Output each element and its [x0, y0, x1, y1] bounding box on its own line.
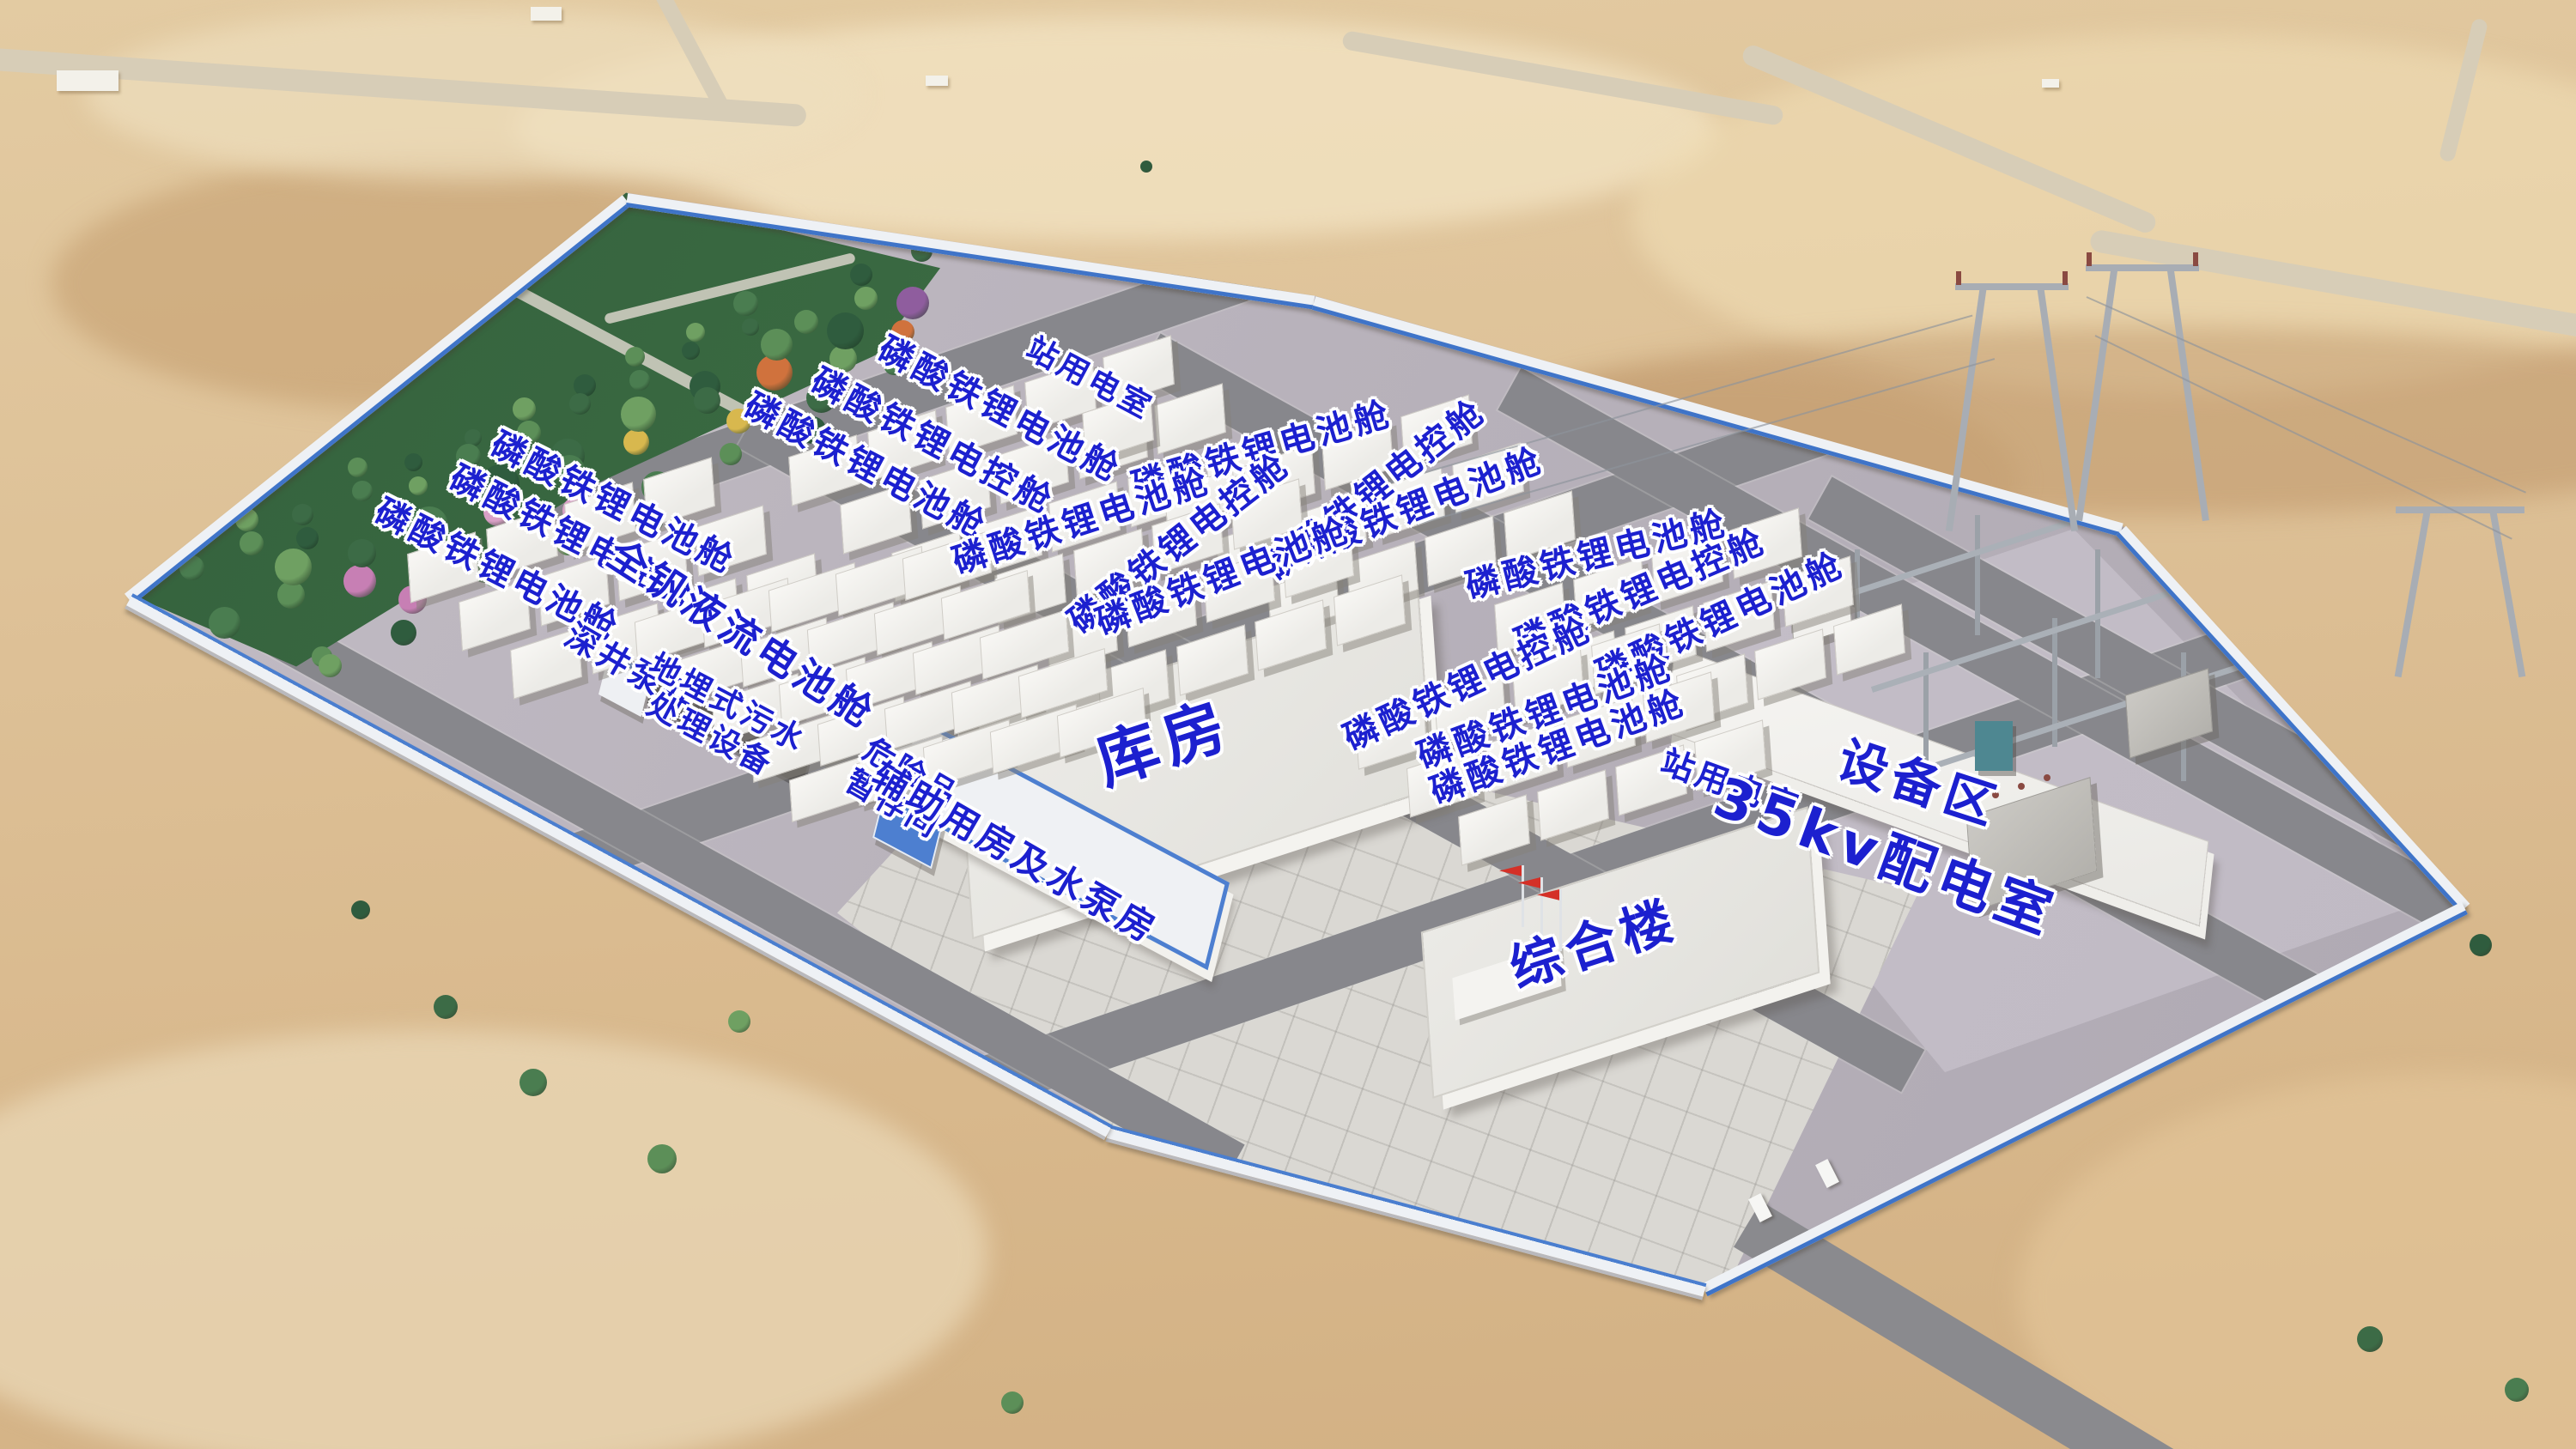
tree	[209, 607, 240, 639]
tree	[1140, 161, 1152, 173]
aerial-render-stage: 磷酸铁锂电池舱磷酸铁锂电控舱磷酸铁锂电池舱磷酸铁锂电池舱磷酸铁锂电控舱磷酸铁锂电…	[0, 0, 2576, 1449]
tree	[850, 264, 872, 286]
tree	[794, 310, 818, 334]
transmission-pylon	[2387, 506, 2533, 678]
tree	[694, 387, 720, 414]
tree	[275, 549, 312, 585]
tree	[728, 1010, 750, 1033]
tree	[409, 476, 428, 495]
tree	[827, 312, 864, 349]
tree	[292, 504, 313, 525]
transformer-bushing	[2018, 783, 2025, 790]
tree	[348, 458, 368, 477]
tree	[569, 393, 591, 415]
distant-building	[926, 76, 948, 86]
tree	[625, 347, 645, 367]
tree	[2357, 1326, 2383, 1352]
distant-building	[2042, 79, 2059, 88]
tree	[621, 397, 656, 432]
tree	[686, 323, 705, 342]
distant-building	[531, 7, 562, 21]
tree	[519, 1069, 547, 1096]
control-cabinet	[1975, 721, 2013, 771]
tree	[2470, 934, 2492, 956]
tree	[296, 527, 319, 549]
dune-shape	[2018, 1073, 2576, 1449]
tree	[391, 620, 416, 646]
tree	[682, 342, 700, 360]
tree	[720, 443, 742, 465]
tree	[896, 287, 929, 319]
transmission-tower	[1947, 283, 2076, 532]
tree	[404, 453, 422, 471]
tree	[351, 900, 370, 919]
tree	[629, 370, 650, 391]
tree	[513, 397, 536, 421]
tree	[2505, 1378, 2529, 1402]
distant-building	[57, 70, 118, 91]
flag-pole	[1522, 865, 1524, 927]
transformer-bushing	[2044, 774, 2050, 781]
tree	[761, 329, 793, 361]
tree	[854, 287, 878, 310]
tree	[319, 654, 342, 677]
dune-shape	[0, 1030, 987, 1449]
gantry-post	[1975, 515, 1980, 635]
tree	[623, 429, 649, 455]
tree	[123, 541, 140, 558]
tree	[1001, 1391, 1024, 1414]
tree	[733, 291, 758, 316]
tree	[434, 995, 458, 1019]
